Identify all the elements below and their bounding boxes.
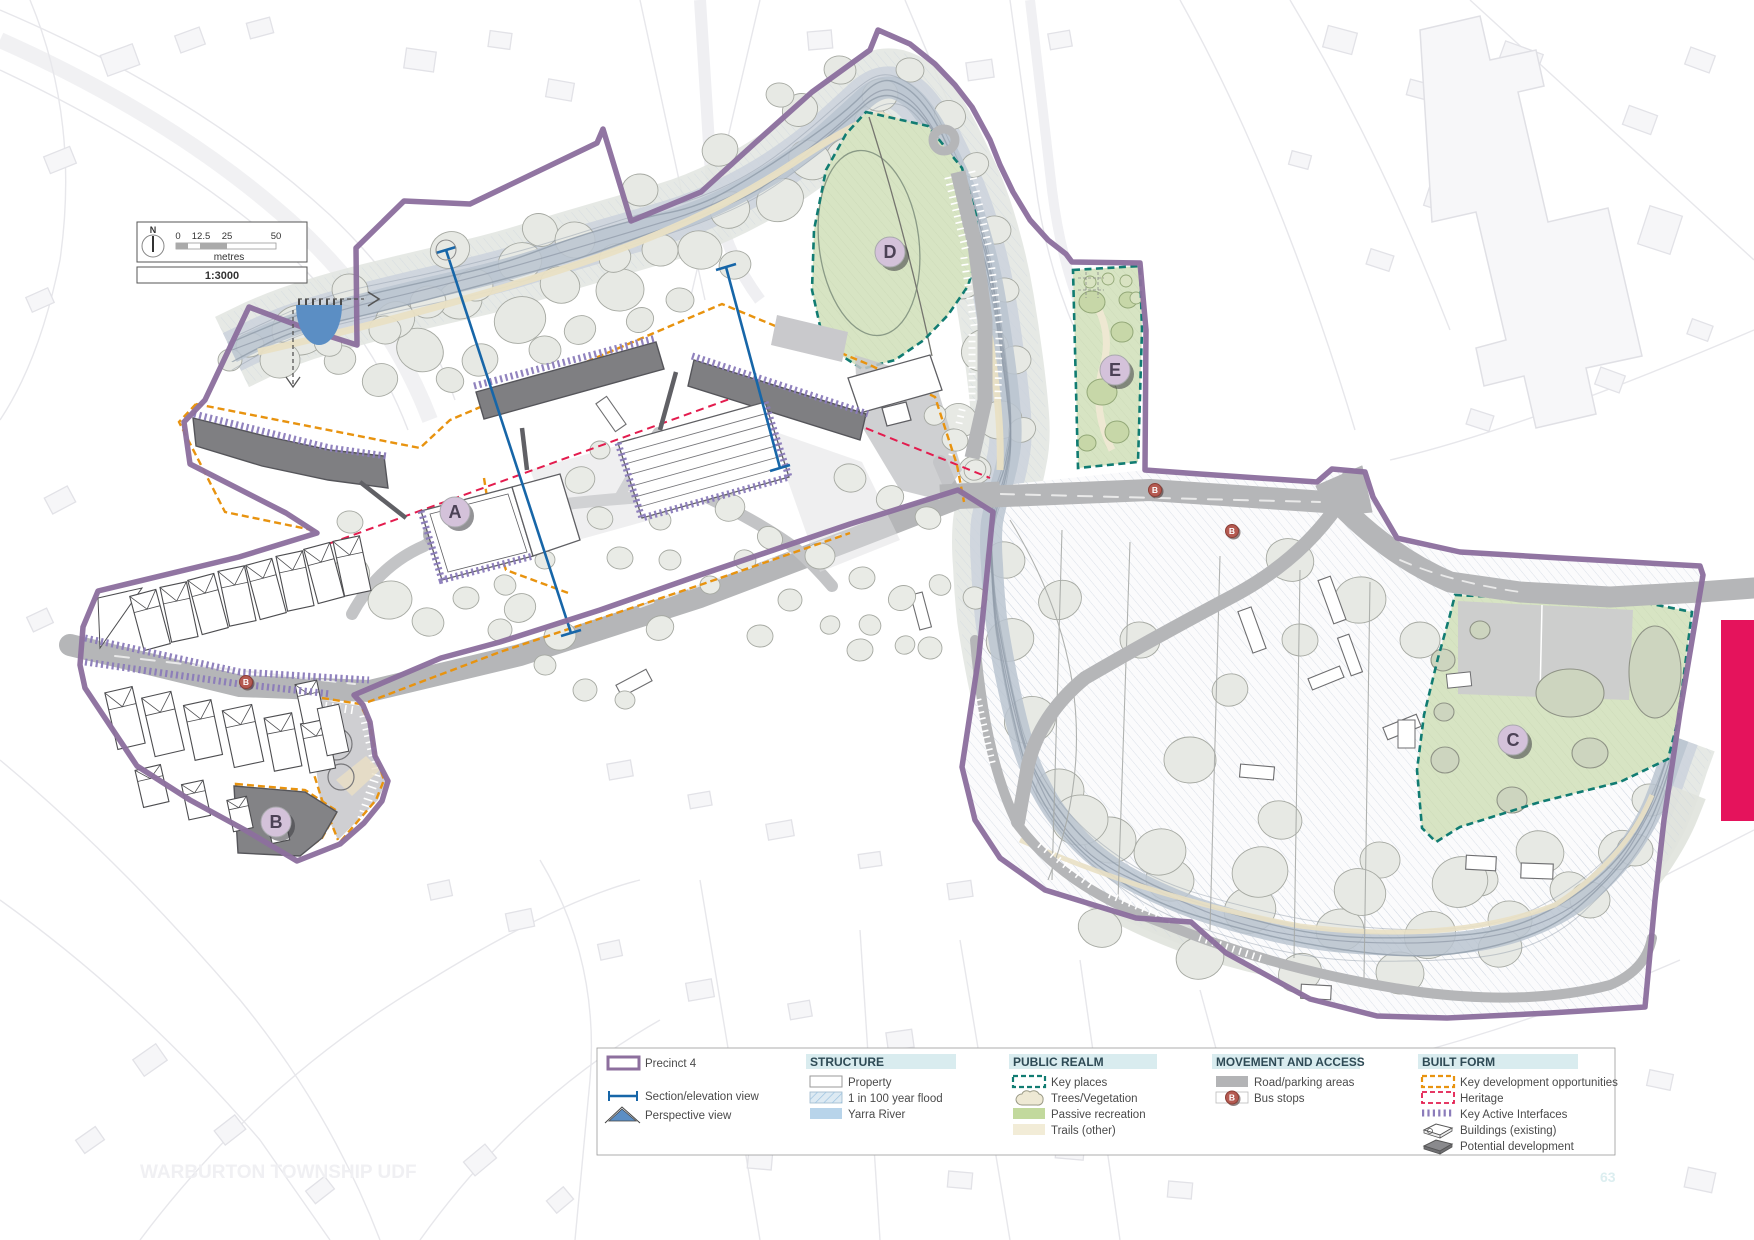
svg-text:Potential development: Potential development bbox=[1460, 1141, 1575, 1153]
svg-text:1:3000: 1:3000 bbox=[205, 270, 239, 282]
svg-text:B: B bbox=[1229, 1093, 1235, 1103]
svg-text:Road/parking areas: Road/parking areas bbox=[1254, 1077, 1355, 1089]
svg-text:B: B bbox=[1152, 485, 1158, 495]
svg-text:WARBURTON TOWNSHIP UDF: WARBURTON TOWNSHIP UDF bbox=[140, 1162, 417, 1183]
svg-text:Passive recreation: Passive recreation bbox=[1051, 1109, 1146, 1121]
svg-text:MOVEMENT AND ACCESS: MOVEMENT AND ACCESS bbox=[1216, 1055, 1365, 1069]
svg-text:metres: metres bbox=[214, 252, 245, 263]
svg-text:25: 25 bbox=[222, 231, 233, 242]
svg-text:E: E bbox=[1109, 360, 1121, 380]
svg-text:C: C bbox=[1507, 730, 1520, 750]
svg-text:Buildings (existing): Buildings (existing) bbox=[1460, 1125, 1557, 1137]
svg-text:Perspective view: Perspective view bbox=[645, 1110, 732, 1122]
svg-text:Key places: Key places bbox=[1051, 1077, 1108, 1089]
svg-text:PUBLIC REALM: PUBLIC REALM bbox=[1013, 1055, 1104, 1069]
svg-text:A: A bbox=[449, 502, 462, 522]
svg-text:B: B bbox=[1229, 526, 1235, 536]
svg-text:Bus stops: Bus stops bbox=[1254, 1093, 1305, 1105]
svg-text:Precinct 4: Precinct 4 bbox=[645, 1058, 697, 1070]
svg-text:B: B bbox=[243, 677, 249, 687]
svg-text:STRUCTURE: STRUCTURE bbox=[810, 1055, 884, 1069]
svg-text:Heritage: Heritage bbox=[1460, 1093, 1503, 1105]
svg-text:Trees/Vegetation: Trees/Vegetation bbox=[1051, 1093, 1138, 1105]
svg-text:50: 50 bbox=[271, 231, 282, 242]
svg-text:Trails (other): Trails (other) bbox=[1051, 1125, 1116, 1137]
svg-text:B: B bbox=[270, 812, 283, 832]
svg-text:Property: Property bbox=[848, 1077, 892, 1089]
svg-text:BUILT FORM: BUILT FORM bbox=[1422, 1055, 1495, 1069]
svg-text:63: 63 bbox=[1600, 1169, 1616, 1185]
svg-text:Yarra River: Yarra River bbox=[848, 1109, 905, 1121]
svg-text:N: N bbox=[150, 225, 157, 235]
svg-text:1 in 100 year flood: 1 in 100 year flood bbox=[848, 1093, 943, 1105]
svg-text:Key Active Interfaces: Key Active Interfaces bbox=[1460, 1109, 1568, 1121]
svg-text:Section/elevation view: Section/elevation view bbox=[645, 1091, 759, 1103]
svg-text:12.5: 12.5 bbox=[192, 231, 211, 242]
svg-text:0: 0 bbox=[175, 231, 180, 242]
svg-text:Key development opportunities: Key development opportunities bbox=[1460, 1077, 1618, 1089]
svg-text:D: D bbox=[884, 242, 897, 262]
